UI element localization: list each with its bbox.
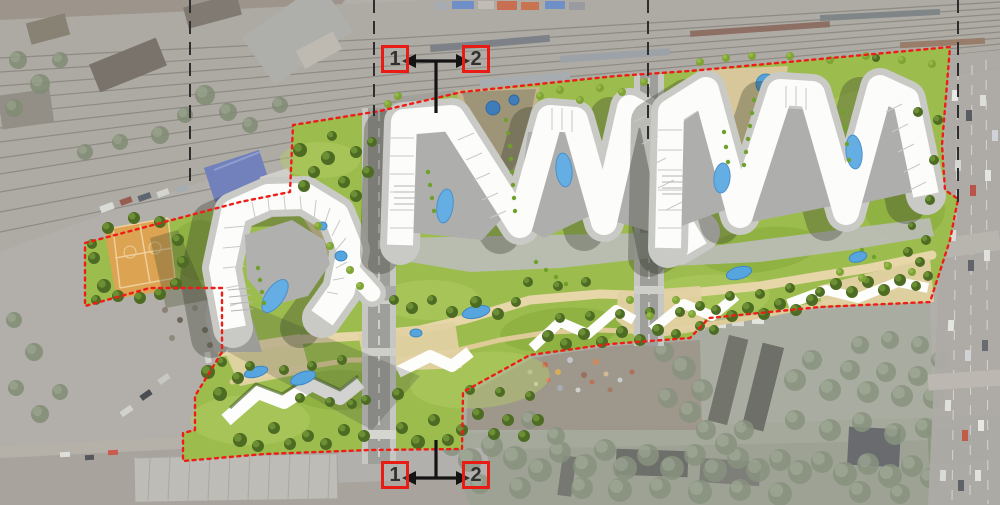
building-complex-left bbox=[200, 196, 372, 338]
road-b-crossing bbox=[634, 286, 664, 294]
section-marker-2-top: 2 bbox=[462, 45, 490, 73]
section-marker-2-bottom: 2 bbox=[462, 461, 490, 489]
section-marker-1-top: 1 bbox=[381, 45, 409, 73]
section-marker-1-bottom: 1 bbox=[381, 461, 409, 489]
site-plan-screenshot: 1 2 1 2 bbox=[0, 0, 1000, 505]
masterplan-scene bbox=[0, 0, 1000, 505]
